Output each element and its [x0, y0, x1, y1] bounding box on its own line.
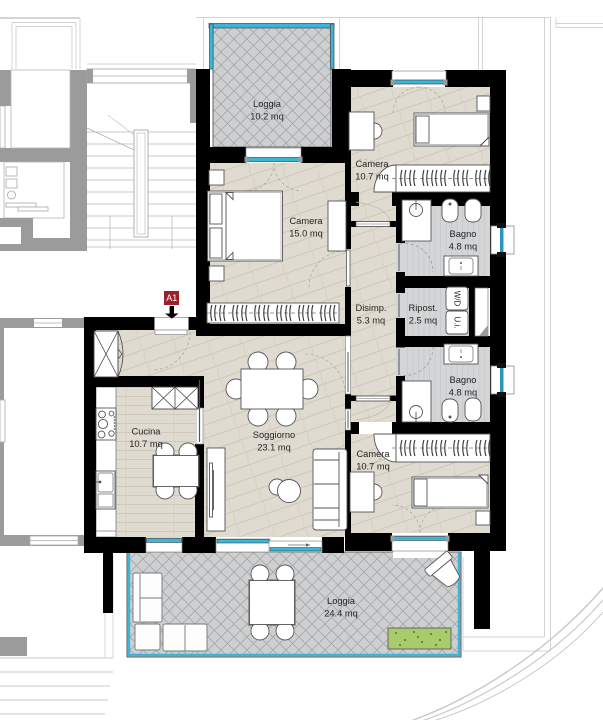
svg-text:Ripost.: Ripost.: [409, 303, 438, 313]
svg-text:Bagno: Bagno: [450, 375, 477, 385]
svg-text:Camera: Camera: [356, 449, 390, 459]
svg-text:24.4 mq: 24.4 mq: [324, 609, 358, 619]
svg-text:Camera: Camera: [289, 216, 323, 226]
svg-text:Cucina: Cucina: [132, 427, 162, 437]
svg-text:U.i.: U.i.: [453, 317, 462, 329]
svg-text:10.7 mq: 10.7 mq: [129, 439, 163, 449]
svg-text:10.7 mq: 10.7 mq: [355, 172, 389, 182]
svg-text:10.2 mq: 10.2 mq: [250, 112, 284, 122]
svg-text:Bagno: Bagno: [450, 229, 477, 239]
svg-text:23.1 mq: 23.1 mq: [257, 443, 291, 453]
svg-text:Soggiorno: Soggiorno: [253, 430, 295, 440]
svg-text:Camera: Camera: [355, 159, 389, 169]
svg-text:10.7 mq: 10.7 mq: [356, 462, 390, 472]
svg-text:15.0 mq: 15.0 mq: [289, 229, 323, 239]
svg-text:4.8 mq: 4.8 mq: [449, 242, 477, 252]
svg-text:W/D: W/D: [453, 291, 462, 307]
svg-text:Loggia: Loggia: [253, 99, 282, 109]
svg-text:5.3 mq: 5.3 mq: [357, 316, 385, 326]
svg-text:Loggia: Loggia: [327, 596, 356, 606]
svg-text:4.8 mq: 4.8 mq: [449, 388, 477, 398]
svg-text:Disimp.: Disimp.: [356, 303, 387, 313]
svg-text:2.5 mq: 2.5 mq: [409, 316, 437, 326]
svg-text:A1: A1: [166, 293, 177, 303]
